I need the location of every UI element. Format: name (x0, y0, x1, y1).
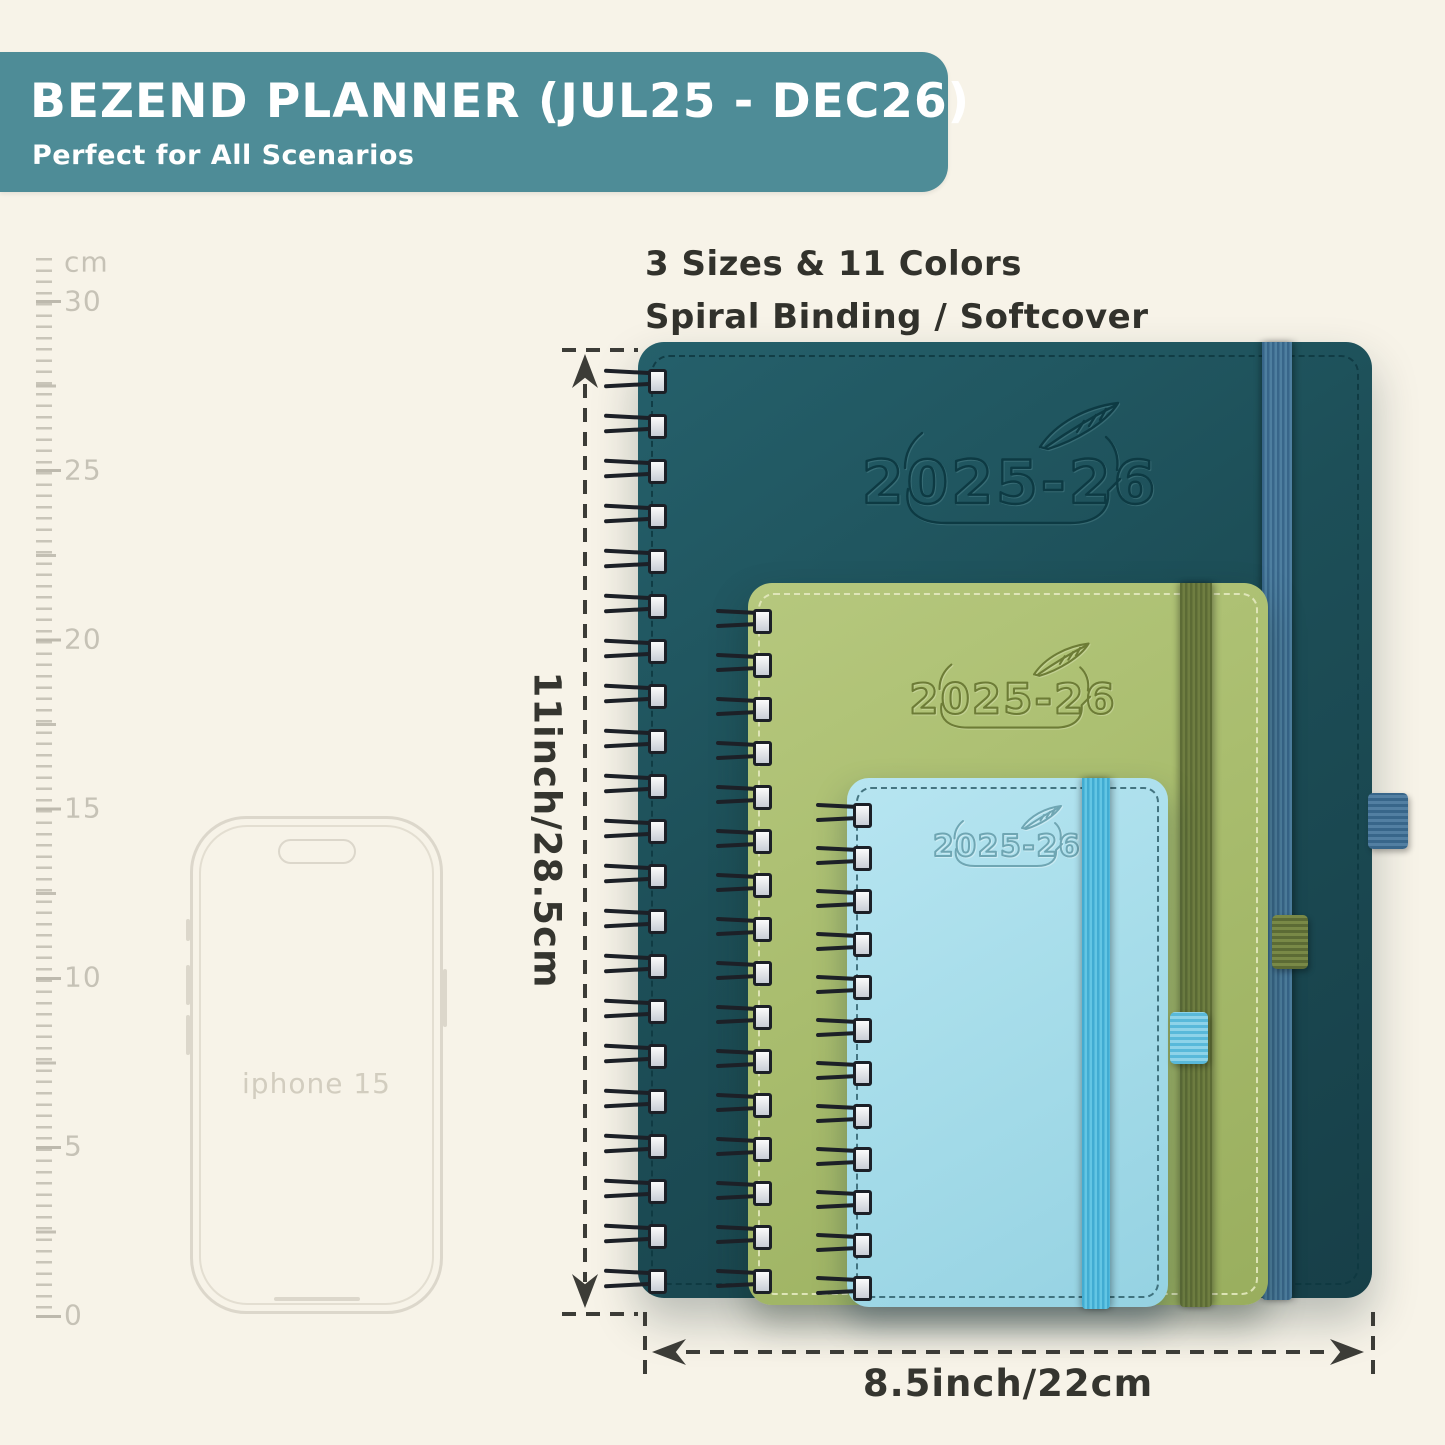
spiral-loop (716, 1178, 772, 1206)
dimension-cap-right (1371, 1312, 1375, 1374)
ruler-long-ticks (36, 300, 61, 1318)
spiral-loop (604, 501, 667, 529)
dimension-cap-left (643, 1312, 647, 1374)
ruler-label: 20 (64, 623, 102, 656)
iphone-volume-down-button (186, 1015, 190, 1055)
spiral-loop (716, 738, 772, 766)
planner-medium-elastic-band (1180, 583, 1212, 1307)
spiral-loop (604, 591, 667, 619)
spiral-loop (716, 1002, 772, 1030)
spiral-loop (816, 1144, 872, 1172)
features-line-2: Spiral Binding / Softcover (645, 291, 1148, 344)
spiral-loop (716, 1266, 772, 1294)
spiral-loop (816, 800, 872, 828)
dimension-line-horizontal (686, 1350, 1330, 1354)
spiral-loop (716, 694, 772, 722)
planner-large-pen-loop (1368, 793, 1408, 849)
product-size-diagram: BEZEND PLANNER (JUL25 - DEC26) Perfect f… (0, 0, 1445, 1445)
features-text: 3 Sizes & 11 Colors Spiral Binding / Sof… (645, 238, 1148, 344)
spiral-binding (604, 366, 667, 1306)
dimension-cap-top (562, 348, 638, 352)
spiral-loop (716, 650, 772, 678)
spiral-loop (604, 366, 667, 394)
spiral-loop (816, 1273, 872, 1301)
spiral-loop (604, 411, 667, 439)
planner-small-elastic-band (1082, 778, 1110, 1309)
ruler-label: 25 (64, 454, 102, 487)
ruler-label: 15 (64, 792, 102, 825)
spiral-loop (716, 782, 772, 810)
spiral-loop (604, 861, 667, 889)
spiral-loop (716, 826, 772, 854)
spiral-loop (604, 816, 667, 844)
ruler-label: 5 (64, 1130, 83, 1163)
spiral-loop (816, 929, 872, 957)
ruler-label: 0 (64, 1299, 83, 1332)
spiral-loop (604, 951, 667, 979)
planner-medium-logo: 2025-26 (908, 638, 1118, 743)
planner-medium-pen-loop (1272, 915, 1308, 969)
iphone-home-bar (274, 1297, 360, 1301)
spiral-loop (604, 771, 667, 799)
cover-year-text: 2025-26 (909, 675, 1116, 724)
spiral-loop (816, 886, 872, 914)
iphone-label: iphone 15 (193, 1067, 440, 1100)
dimension-cap-bottom (562, 1312, 638, 1316)
spiral-loop (816, 1187, 872, 1215)
spiral-loop (604, 636, 667, 664)
spiral-loop (604, 1041, 667, 1069)
product-title: BEZEND PLANNER (JUL25 - DEC26) (30, 74, 970, 129)
spiral-loop (604, 996, 667, 1024)
planner-large-logo: 2025-26 (860, 395, 1160, 545)
cover-year-text: 2025-26 (933, 829, 1081, 864)
spiral-loop (716, 1046, 772, 1074)
spiral-loop (716, 1134, 772, 1162)
features-line-1: 3 Sizes & 11 Colors (645, 238, 1148, 291)
spiral-binding (716, 606, 772, 1316)
spiral-loop (604, 726, 667, 754)
spiral-loop (604, 906, 667, 934)
ruler-label: cm (64, 246, 109, 279)
spiral-loop (604, 1131, 667, 1159)
spiral-loop (816, 1101, 872, 1129)
product-subtitle: Perfect for All Scenarios (32, 140, 415, 171)
spiral-loop (816, 972, 872, 1000)
arrow-right-icon (1330, 1339, 1364, 1365)
title-banner: BEZEND PLANNER (JUL25 - DEC26) Perfect f… (0, 52, 948, 192)
spiral-loop (604, 546, 667, 574)
spiral-loop (604, 1221, 667, 1249)
spiral-loop (716, 1222, 772, 1250)
spiral-loop (816, 1015, 872, 1043)
planner-small-logo: 2025-26 (932, 802, 1082, 877)
planner-small-pen-loop (1170, 1012, 1208, 1064)
spiral-loop (816, 843, 872, 871)
arrow-up-icon (572, 354, 598, 388)
ruler-label: 30 (64, 285, 102, 318)
spiral-loop (716, 870, 772, 898)
spiral-loop (716, 914, 772, 942)
spiral-loop (716, 958, 772, 986)
iphone-power-button (443, 969, 447, 1027)
spiral-loop (816, 1230, 872, 1258)
spiral-binding (816, 800, 872, 1320)
iphone-outline: iphone 15 (190, 816, 443, 1314)
spiral-loop (604, 1086, 667, 1114)
dimension-line-vertical (583, 384, 587, 1282)
spiral-loop (604, 681, 667, 709)
spiral-loop (604, 1266, 667, 1294)
arrow-left-icon (652, 1339, 686, 1365)
cover-year-text: 2025-26 (862, 448, 1158, 518)
iphone-dynamic-island (278, 839, 356, 864)
iphone-mute-switch (186, 919, 190, 941)
ruler-label: 10 (64, 961, 102, 994)
iphone-screen-outline (199, 825, 434, 1305)
spiral-loop (716, 1090, 772, 1118)
width-dimension-label: 8.5inch/22cm (863, 1362, 1153, 1405)
iphone-volume-up-button (186, 965, 190, 1005)
spiral-loop (604, 456, 667, 484)
spiral-loop (604, 1176, 667, 1204)
spiral-loop (716, 606, 772, 634)
spiral-loop (816, 1058, 872, 1086)
height-dimension-label: 11inch/28.5cm (526, 671, 569, 988)
